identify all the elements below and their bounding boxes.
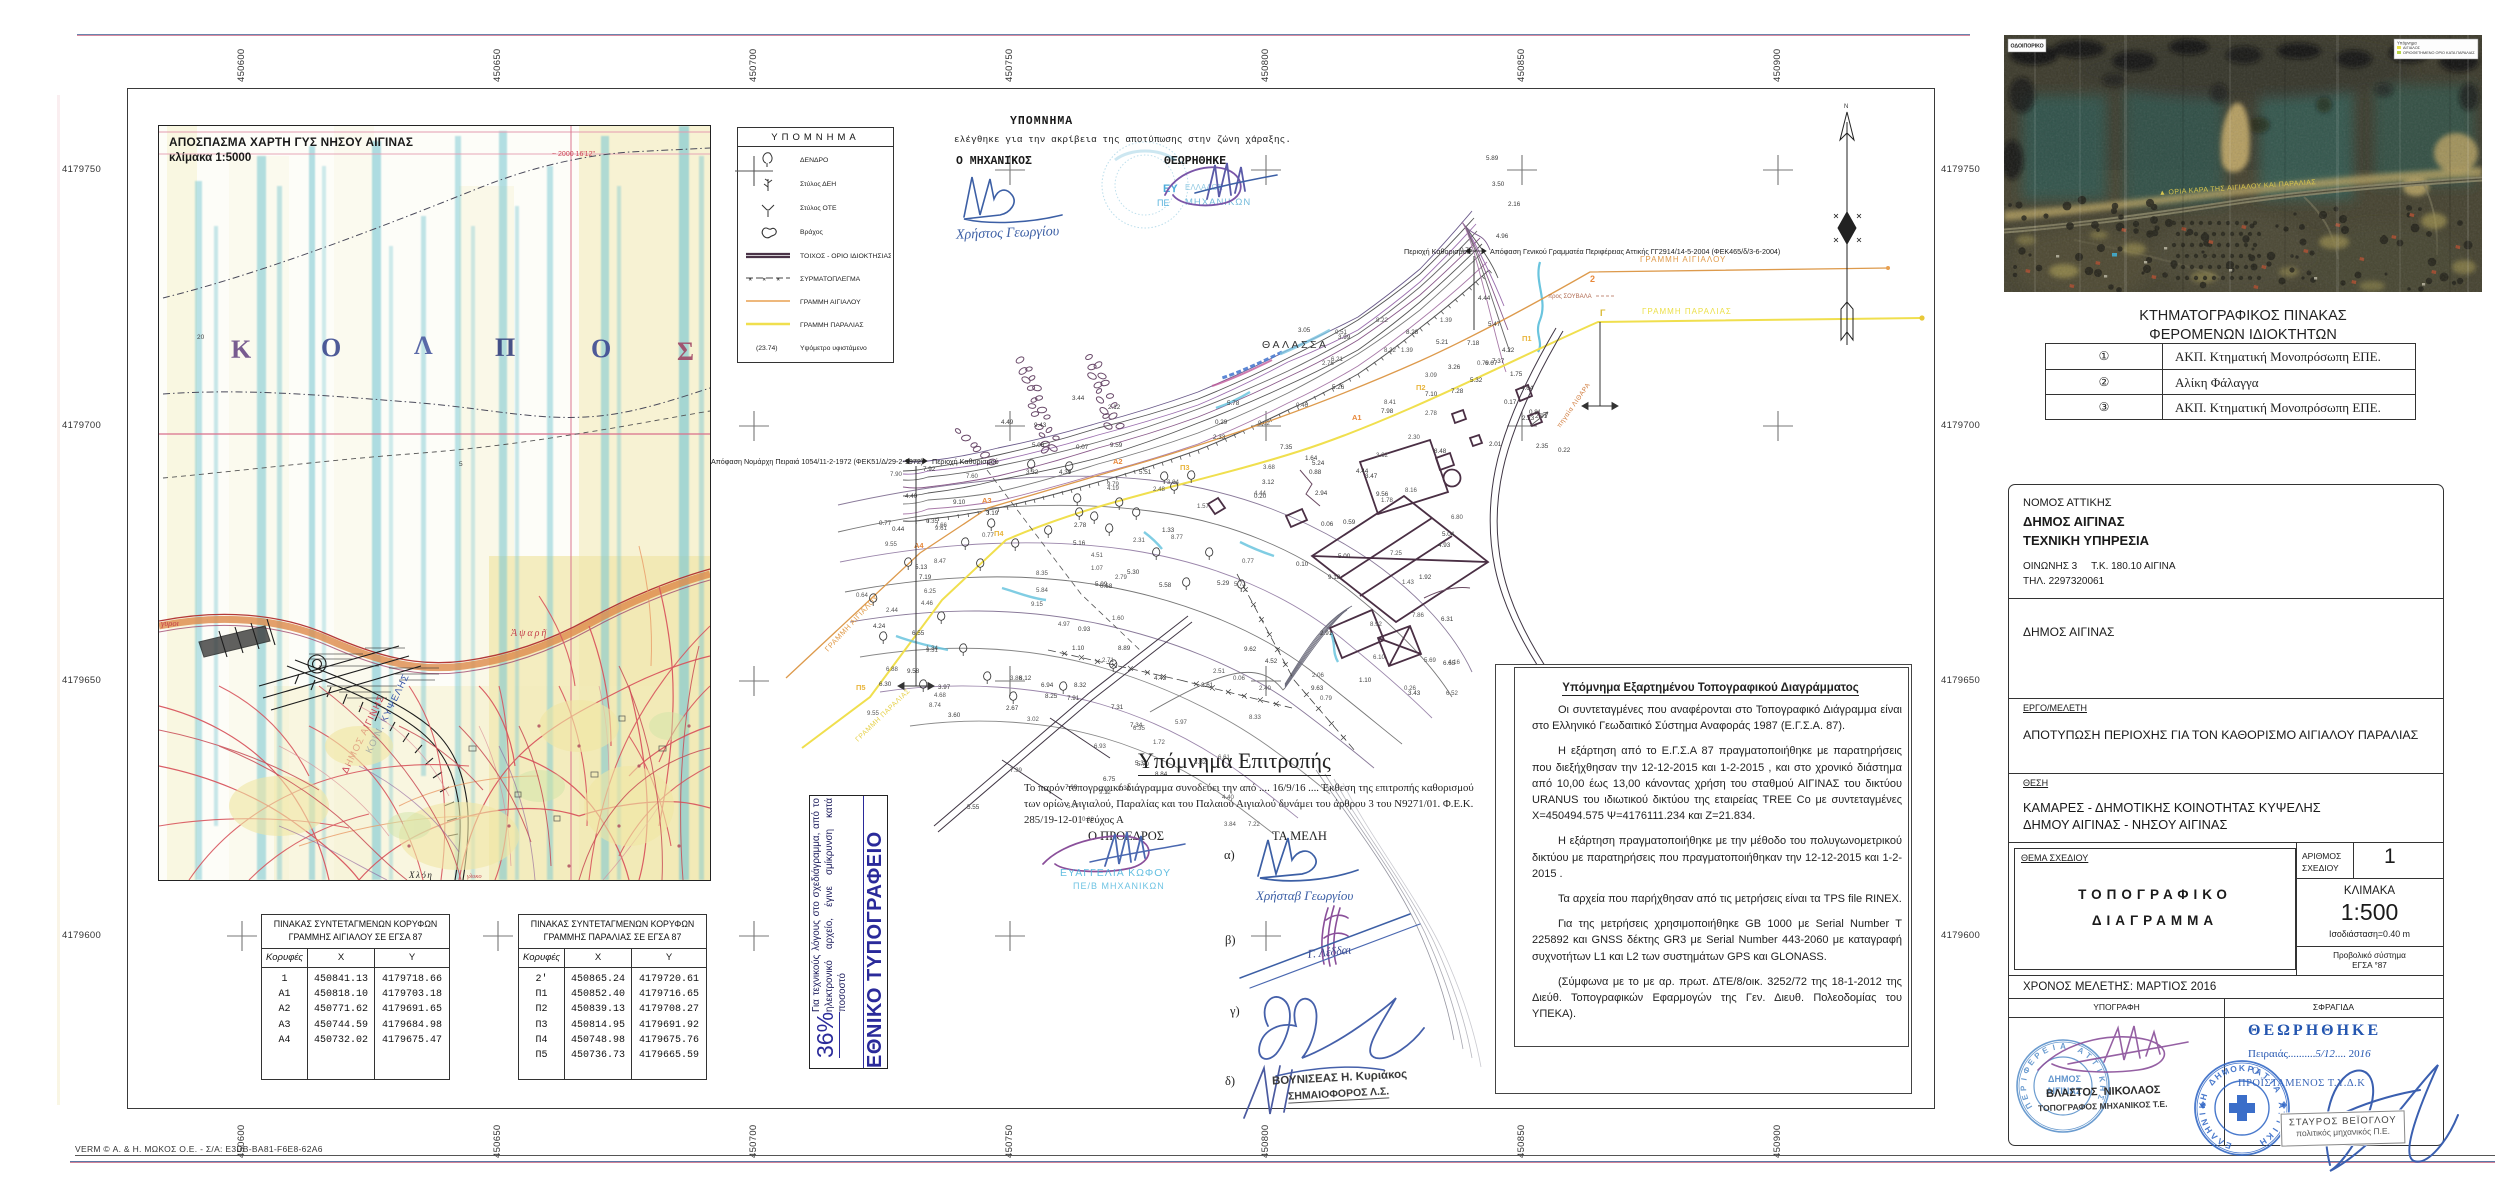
- svg-text:9.10: 9.10: [953, 499, 966, 506]
- svg-text:Στύλος ΟΤΕ: Στύλος ΟΤΕ: [800, 204, 837, 212]
- svg-text:0.22: 0.22: [1558, 447, 1571, 454]
- svg-text:0.77: 0.77: [982, 532, 994, 539]
- svg-text:3.50: 3.50: [1492, 181, 1505, 188]
- svg-text:7.10: 7.10: [1425, 391, 1438, 398]
- svg-text:9.15: 9.15: [1031, 601, 1043, 608]
- svg-text:4.68: 4.68: [934, 692, 946, 699]
- svg-text:8.25: 8.25: [1045, 693, 1058, 700]
- svg-text:5.89: 5.89: [1486, 155, 1499, 162]
- svg-text:0.29: 0.29: [1215, 419, 1228, 426]
- svg-text:5.21: 5.21: [1436, 339, 1449, 346]
- svg-text:5.13: 5.13: [915, 564, 928, 571]
- svg-text:2.01: 2.01: [1489, 441, 1502, 448]
- svg-text:3.44: 3.44: [1072, 395, 1085, 402]
- svg-text:Ι: Ι: [2197, 1112, 2207, 1116]
- svg-text:3.60: 3.60: [948, 712, 961, 719]
- svg-text:1.10: 1.10: [1359, 677, 1372, 684]
- svg-text:ΔΕΝΔΡΟ: ΔΕΝΔΡΟ: [800, 157, 828, 164]
- svg-text:Π1: Π1: [1522, 334, 1532, 343]
- svg-text:7.60: 7.60: [966, 473, 978, 480]
- svg-text:2.51: 2.51: [1213, 668, 1225, 675]
- svg-text:Απόφαση Γενικού Γραμματέα Περι: Απόφαση Γενικού Γραμματέα Περιφέρειας Ατ…: [1490, 247, 1780, 256]
- svg-text:3.19: 3.19: [986, 510, 999, 517]
- svg-text:8.32: 8.32: [1384, 347, 1396, 354]
- svg-text:Ρ: Ρ: [2247, 1063, 2255, 1074]
- svg-text:5.29: 5.29: [1217, 580, 1230, 587]
- svg-text:2.06: 2.06: [1312, 672, 1324, 679]
- svg-text:ΟΔΟΙΠΟΡΙΚΟ: ΟΔΟΙΠΟΡΙΚΟ: [2011, 44, 2044, 50]
- svg-text:5.30: 5.30: [1127, 569, 1140, 576]
- svg-text:ΓΡΑΜΜΗ ΑΙΓΙΑΛΟΥ: ΓΡΑΜΜΗ ΑΙΓΙΑΛΟΥ: [1640, 255, 1726, 264]
- svg-text:5.58: 5.58: [1159, 582, 1172, 589]
- svg-text:6.52: 6.52: [1446, 690, 1458, 697]
- svg-text:2.30: 2.30: [1408, 434, 1420, 441]
- svg-text:1.60: 1.60: [1112, 615, 1124, 622]
- svg-text:2.61: 2.61: [1201, 682, 1214, 689]
- svg-text:1.72: 1.72: [1153, 739, 1165, 746]
- svg-text:0.77: 0.77: [879, 520, 892, 527]
- svg-text:Τ: Τ: [2261, 1070, 2272, 1082]
- svg-text:ΑΙΓΙΑΛΟΣ: ΑΙΓΙΑΛΟΣ: [2403, 46, 2421, 50]
- svg-text:4.97: 4.97: [1058, 621, 1070, 628]
- svg-text:Φ: Φ: [2021, 1065, 2032, 1075]
- svg-text:4.44: 4.44: [1478, 295, 1491, 302]
- svg-text:7.28: 7.28: [1451, 388, 1464, 395]
- svg-text:2.31: 2.31: [1133, 537, 1145, 544]
- svg-text:Ρ: Ρ: [2019, 1085, 2028, 1091]
- svg-text:ΓΡΑΜΜΗ ΠΑΡΑΛΙΑΣ: ΓΡΑΜΜΗ ΠΑΡΑΛΙΑΣ: [800, 322, 864, 329]
- svg-text:6.25: 6.25: [924, 588, 936, 595]
- svg-text:0.77: 0.77: [1242, 558, 1254, 565]
- svg-text:5.51: 5.51: [1139, 469, 1152, 476]
- svg-text:5.71: 5.71: [1234, 581, 1246, 588]
- svg-text:0.26: 0.26: [1404, 685, 1416, 692]
- svg-text:γλυκο: γλυκο: [467, 873, 482, 880]
- svg-text:Ο: Ο: [591, 334, 611, 363]
- svg-text:5.00: 5.00: [1338, 553, 1351, 560]
- svg-text:2.94: 2.94: [1315, 490, 1328, 497]
- svg-text:Α2: Α2: [1113, 457, 1123, 466]
- svg-text:1.75: 1.75: [1510, 371, 1523, 378]
- svg-text:5.04: 5.04: [1442, 531, 1455, 538]
- svg-text:7.98: 7.98: [1381, 408, 1394, 415]
- svg-text:ΘΑΛΑΣΣΑ: ΘΑΛΑΣΣΑ: [1262, 339, 1328, 351]
- svg-text:ΔΗΜΟΣ: ΔΗΜΟΣ: [2048, 1074, 2081, 1084]
- svg-text:2.91: 2.91: [1320, 630, 1333, 637]
- svg-text:Π4: Π4: [994, 529, 1004, 538]
- svg-text:4.39: 4.39: [1059, 469, 1072, 476]
- svg-text:Ι: Ι: [2271, 1126, 2281, 1133]
- svg-text:Σ: Σ: [677, 337, 694, 366]
- svg-text:Α1: Α1: [1352, 413, 1362, 422]
- svg-text:8.47: 8.47: [934, 558, 946, 565]
- svg-text:ΑΠΟΣΠΑΣΜΑ ΧΑΡΤΗ ΓΥΣ ΝΗΣΟΥ ΑΙΓ: ΑΠΟΣΠΑΣΜΑ ΧΑΡΤΗ ΓΥΣ ΝΗΣΟΥ ΑΙΓΙΝΑΣ: [169, 135, 413, 149]
- svg-text:Ν: Ν: [2199, 1118, 2211, 1127]
- svg-text:Π5: Π5: [856, 683, 866, 692]
- svg-text:9.43: 9.43: [1034, 422, 1047, 429]
- svg-text:Απόφαση Νομάρχη Πειραιά 1054/1: Απόφαση Νομάρχη Πειραιά 1054/11-2-1972 (…: [711, 457, 923, 466]
- svg-text:Λ: Λ: [414, 331, 433, 360]
- svg-text:Α: Α: [2076, 1045, 2085, 1056]
- svg-text:8.77: 8.77: [1171, 534, 1183, 541]
- svg-text:5.69: 5.69: [1424, 657, 1436, 664]
- svg-text:5.32: 5.32: [1470, 377, 1483, 384]
- svg-text:Π: Π: [495, 333, 515, 362]
- svg-text:ΓΡΑΜΜΗ ΑΙΓΙΑΛΟΥ: ΓΡΑΜΜΗ ΑΙΓΙΑΛΟΥ: [800, 299, 861, 306]
- svg-text:9.18: 9.18: [1328, 574, 1341, 581]
- svg-text:5.78: 5.78: [1227, 400, 1240, 407]
- svg-text:0.79: 0.79: [1477, 360, 1489, 367]
- svg-text:8.32: 8.32: [1074, 682, 1087, 689]
- svg-text:9.55: 9.55: [885, 541, 897, 548]
- svg-text:3.32: 3.32: [1026, 469, 1039, 476]
- svg-text:3.12: 3.12: [1262, 479, 1275, 486]
- svg-text:1.10: 1.10: [1072, 645, 1085, 652]
- svg-text:9.79: 9.79: [1107, 481, 1119, 488]
- svg-text:2.78: 2.78: [1425, 410, 1437, 417]
- svg-text:0.07: 0.07: [1076, 444, 1089, 451]
- svg-text:2: 2: [1590, 274, 1595, 284]
- svg-text:Ι: Ι: [2268, 1078, 2277, 1086]
- svg-text:κλίμακα 1:5000: κλίμακα 1:5000: [169, 152, 251, 164]
- svg-text:Ρ: Ρ: [2033, 1050, 2043, 1061]
- svg-text:1.33: 1.33: [1162, 527, 1175, 534]
- svg-text:0.44: 0.44: [892, 526, 905, 533]
- svg-text:5.84: 5.84: [1036, 587, 1048, 594]
- svg-text:8.28: 8.28: [1406, 329, 1419, 336]
- svg-text:7.86: 7.86: [1412, 612, 1424, 619]
- svg-text:Ι: Ι: [2052, 1043, 2056, 1052]
- svg-text:2.40: 2.40: [1259, 685, 1271, 692]
- svg-text:6.35: 6.35: [1133, 725, 1145, 732]
- svg-text:3.05: 3.05: [1298, 327, 1311, 334]
- svg-text:4.44: 4.44: [1356, 468, 1369, 475]
- svg-text:8.16: 8.16: [1405, 487, 1417, 494]
- svg-text:6.93: 6.93: [1094, 743, 1106, 750]
- svg-text:προς ΣΟΥΒΑΛΑ: προς ΣΟΥΒΑΛΑ: [1548, 294, 1592, 300]
- svg-text:6.21: 6.21: [1331, 356, 1343, 363]
- svg-text:7.66: 7.66: [935, 522, 947, 529]
- svg-text:7.31: 7.31: [1111, 704, 1124, 711]
- svg-text:9.58: 9.58: [907, 668, 920, 675]
- svg-text:ΣΥΡΜΑΤΟΠΛΕΓΜΑ: ΣΥΡΜΑΤΟΠΛΕΓΜΑ: [800, 276, 861, 283]
- svg-text:0.51: 0.51: [1335, 329, 1347, 336]
- svg-text:2.12: 2.12: [1108, 404, 1121, 411]
- svg-text:7.25: 7.25: [1390, 550, 1402, 557]
- svg-text:Ι: Ι: [2020, 1077, 2029, 1081]
- svg-text:Κ: Κ: [2239, 1063, 2246, 1073]
- svg-text:6.80: 6.80: [1451, 514, 1463, 521]
- svg-text:4.46: 4.46: [921, 600, 933, 607]
- svg-text:4.52: 4.52: [1265, 658, 1278, 665]
- svg-text:0.68: 0.68: [1100, 583, 1113, 590]
- svg-text:8.35: 8.35: [1036, 570, 1048, 577]
- svg-text:γυροι: γυροι: [161, 618, 180, 628]
- svg-text:3.04: 3.04: [1167, 479, 1179, 486]
- svg-text:Π3: Π3: [1180, 463, 1190, 472]
- svg-text:6.94: 6.94: [1041, 682, 1054, 689]
- svg-text:9.63: 9.63: [1311, 685, 1324, 692]
- svg-text:7.18: 7.18: [1467, 340, 1480, 347]
- svg-text:2.23: 2.23: [1522, 415, 1535, 422]
- svg-text:7.92: 7.92: [923, 466, 936, 473]
- svg-text:ΠΕ/Β ΜΗΧΑΝΙΚΩΝ: ΠΕ/Β ΜΗΧΑΝΙΚΩΝ: [1073, 881, 1165, 891]
- svg-text:7.90: 7.90: [890, 471, 902, 478]
- svg-text:Κ: Κ: [231, 335, 252, 364]
- svg-text:9.55: 9.55: [867, 710, 879, 717]
- svg-text:3.86: 3.86: [1010, 675, 1022, 682]
- svg-text:5.26: 5.26: [1332, 384, 1345, 391]
- svg-text:9.02: 9.02: [1258, 420, 1270, 427]
- svg-text:5.47: 5.47: [1488, 321, 1501, 328]
- svg-text:1.39: 1.39: [1401, 347, 1413, 354]
- svg-text:2.35: 2.35: [1536, 443, 1549, 450]
- svg-text:8.41: 8.41: [1384, 399, 1396, 406]
- svg-text:4.44: 4.44: [1254, 490, 1266, 497]
- svg-text:Η: Η: [2258, 1136, 2269, 1148]
- svg-text:1.57: 1.57: [1197, 503, 1209, 510]
- svg-text:7.91: 7.91: [1067, 695, 1080, 702]
- svg-text:6.30: 6.30: [879, 681, 892, 688]
- svg-text:Στύλος ΔΕΗ: Στύλος ΔΕΗ: [800, 180, 836, 188]
- svg-text:4.24: 4.24: [873, 623, 886, 630]
- svg-text:4.64: 4.64: [1521, 385, 1534, 392]
- svg-text:1.78: 1.78: [1381, 497, 1393, 504]
- svg-text:7.19: 7.19: [919, 574, 932, 581]
- svg-text:2.79: 2.79: [1115, 574, 1127, 581]
- svg-text:2.33: 2.33: [1213, 434, 1226, 441]
- svg-text:4.42: 4.42: [1154, 675, 1167, 682]
- svg-text:2.67: 2.67: [1006, 705, 1019, 712]
- svg-text:1.43: 1.43: [1402, 579, 1414, 586]
- svg-text:0.88: 0.88: [1309, 469, 1322, 476]
- svg-text:1.07: 1.07: [1091, 565, 1103, 572]
- svg-text:2.78: 2.78: [1074, 522, 1087, 529]
- svg-text:3.97: 3.97: [938, 684, 951, 691]
- svg-text:N: N: [1844, 104, 1848, 110]
- svg-text:Γ: Γ: [1600, 308, 1606, 318]
- svg-text:(23.74): (23.74): [756, 345, 778, 352]
- svg-text:2.71: 2.71: [1102, 657, 1114, 664]
- svg-text:Ἀψαρῆ: Ἀψαρῆ: [510, 628, 548, 639]
- svg-text:2.48: 2.48: [1153, 486, 1165, 493]
- svg-text:Βράχος: Βράχος: [800, 228, 823, 236]
- svg-text:3.09: 3.09: [1425, 372, 1437, 379]
- svg-text:5.97: 5.97: [1175, 719, 1187, 726]
- svg-text:0.64: 0.64: [856, 592, 868, 599]
- svg-text:ΟΡΙΟΘΕΤΗΜΕΝΟ ΟΡΙΟ ΚΑΤΑ ΠΑΡΑΛΙΑ: ΟΡΙΟΘΕΤΗΜΕΝΟ ΟΡΙΟ ΚΑΤΑ ΠΑΡΑΛΙΑΣ: [2403, 51, 2475, 55]
- svg-text:8.22: 8.22: [1376, 317, 1388, 324]
- svg-text:Α: Α: [2271, 1084, 2283, 1094]
- svg-text:Περιοχή Καθορισμού: Περιοχή Καθορισμού: [932, 457, 999, 466]
- svg-text:~ 2000 16'12": ~ 2000 16'12": [552, 151, 595, 158]
- svg-text:3.62: 3.62: [1376, 452, 1388, 459]
- svg-text:6.10: 6.10: [1373, 654, 1385, 661]
- svg-text:Υψόμετρο υφιστάμενο: Υψόμετρο υφιστάμενο: [800, 344, 867, 352]
- svg-text:9.62: 9.62: [1244, 646, 1257, 653]
- svg-text:Χρήσταβ Γεωργίου: Χρήσταβ Γεωργίου: [1255, 888, 1353, 903]
- svg-text:3.02: 3.02: [1027, 716, 1039, 723]
- svg-text:ΓΡΑΜΜΗ ΠΑΡΑΛΙΑΣ: ΓΡΑΜΜΗ ΠΑΡΑΛΙΑΣ: [1642, 307, 1732, 316]
- svg-text:6.55: 6.55: [912, 630, 925, 637]
- svg-text:0.46: 0.46: [1296, 402, 1308, 409]
- svg-text:5: 5: [459, 461, 463, 468]
- svg-text:4.16: 4.16: [1448, 659, 1460, 666]
- svg-text:0.59: 0.59: [1343, 519, 1356, 526]
- svg-text:6.88: 6.88: [886, 666, 898, 673]
- svg-text:7.99: 7.99: [1010, 767, 1022, 774]
- svg-text:4.93: 4.93: [1438, 542, 1451, 549]
- svg-text:8.33: 8.33: [1249, 714, 1261, 721]
- svg-text:Κ: Κ: [2097, 1076, 2107, 1083]
- svg-text:Γ. Λέδδαι: Γ. Λέδδαι: [1306, 942, 1352, 961]
- svg-text:4.51: 4.51: [1091, 552, 1103, 559]
- svg-text:2.16: 2.16: [1508, 201, 1521, 208]
- svg-text:Π: Π: [2023, 1101, 2034, 1111]
- svg-text:5.16: 5.16: [1073, 540, 1086, 547]
- svg-text:8.74: 8.74: [929, 702, 941, 709]
- svg-text:7.35: 7.35: [1280, 444, 1293, 451]
- svg-text:9.31: 9.31: [926, 647, 938, 654]
- svg-text:0.17: 0.17: [1504, 399, 1517, 406]
- svg-text:5.55: 5.55: [967, 804, 980, 811]
- svg-text:4.49: 4.49: [1001, 419, 1014, 426]
- svg-text:Υπόμνημα: Υπόμνημα: [2397, 41, 2417, 46]
- svg-text:ΕΥΑΓΓΕΛΙΑ ΚΩΦΟΥ: ΕΥΑΓΓΕΛΙΑ ΚΩΦΟΥ: [1060, 867, 1171, 879]
- svg-text:0.06: 0.06: [1321, 521, 1334, 528]
- svg-text:ΤΟΙΧΟΣ - ΟΡΙΟ ΙΔΙΟΚΤΗΣΙΑΣ: ΤΟΙΧΟΣ - ΟΡΙΟ ΙΔΙΟΚΤΗΣΙΑΣ: [800, 253, 891, 260]
- svg-text:2.44: 2.44: [886, 607, 898, 614]
- svg-text:Ε: Ε: [2041, 1045, 2050, 1056]
- svg-text:9.59: 9.59: [1110, 442, 1123, 449]
- svg-text:0.10: 0.10: [1296, 561, 1309, 568]
- svg-text:8.89: 8.89: [1118, 645, 1131, 652]
- svg-text:8.92: 8.92: [1370, 621, 1382, 628]
- svg-text:1.92: 1.92: [1419, 574, 1432, 581]
- svg-text:20: 20: [197, 334, 205, 341]
- svg-text:6.31: 6.31: [1441, 616, 1454, 623]
- svg-text:0.79: 0.79: [1320, 695, 1332, 702]
- svg-text:0.93: 0.93: [1078, 626, 1091, 633]
- svg-text:Α3: Α3: [982, 496, 992, 505]
- svg-text:4.96: 4.96: [1496, 233, 1509, 240]
- svg-text:ΓΡΑΜΜΗ ΠΑΡΑΛΙΑΣ: ΓΡΑΜΜΗ ΠΑΡΑΛΙΑΣ: [855, 688, 912, 744]
- svg-text:1.39: 1.39: [1440, 317, 1452, 324]
- svg-text:Η: Η: [2198, 1093, 2209, 1102]
- svg-text:3.26: 3.26: [1448, 364, 1461, 371]
- svg-text:Ο: Ο: [2229, 1063, 2238, 1074]
- svg-text:Ε: Ε: [2020, 1093, 2030, 1101]
- svg-text:5.06: 5.06: [1032, 442, 1045, 449]
- svg-text:4.22: 4.22: [1502, 347, 1515, 354]
- svg-text:Ο: Ο: [321, 333, 341, 362]
- svg-text:3.68: 3.68: [1263, 464, 1275, 471]
- svg-text:1.64: 1.64: [1305, 455, 1318, 462]
- svg-text:0.06: 0.06: [1233, 675, 1245, 682]
- svg-text:Περιοχή Καθορισμού: Περιοχή Καθορισμού: [1404, 247, 1471, 256]
- svg-text:8.48: 8.48: [1434, 448, 1447, 455]
